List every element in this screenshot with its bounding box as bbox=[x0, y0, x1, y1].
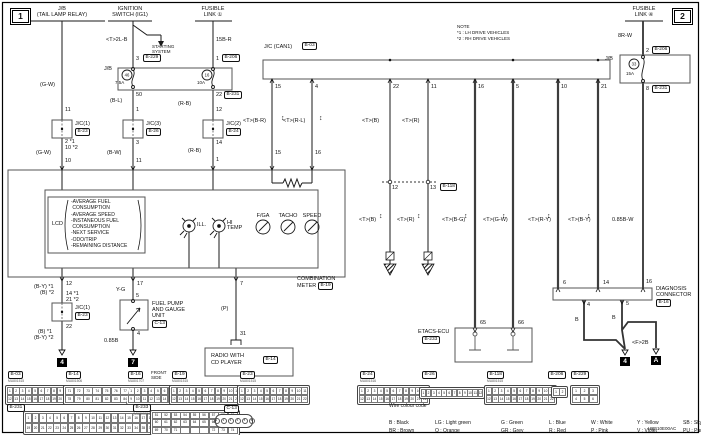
connector-ref-b206a: B-206 bbox=[222, 54, 240, 62]
table-row: 1234567891011 bbox=[359, 387, 428, 395]
table-row: 71727374757677 bbox=[65, 387, 130, 395]
ground-4-left: 4 bbox=[57, 358, 67, 367]
tacho-gauge-label: TACHO bbox=[279, 213, 298, 219]
illumination-lamp-icon bbox=[180, 218, 196, 238]
wire-p: (P) bbox=[221, 306, 228, 312]
table-row: 1234567891011 bbox=[486, 387, 555, 395]
table-code-b23: MU801515 bbox=[240, 379, 256, 383]
gauge-icons bbox=[256, 220, 319, 234]
table-row: 1213141516171819202122 bbox=[239, 395, 308, 403]
connector-ref-b229: B-229 bbox=[143, 54, 161, 62]
pin-50: 50 bbox=[136, 92, 142, 98]
pin-1b: 1 bbox=[136, 107, 139, 113]
pin-12a: 12 bbox=[216, 107, 222, 113]
fuel-gauge-label: F/GA bbox=[257, 213, 270, 219]
connector-ref-b23a: B-23 bbox=[75, 128, 90, 136]
jc-can1-box bbox=[263, 60, 610, 79]
ground-4-right: 4 bbox=[620, 357, 630, 366]
pin-1a: 1 bbox=[216, 56, 219, 62]
pin-4: 4 bbox=[137, 331, 140, 337]
fuse-33-amp: 15A bbox=[626, 71, 634, 76]
table-title-c13: C-13 bbox=[224, 405, 239, 413]
wire-f2b: <F>2B bbox=[632, 340, 649, 346]
fusible-link4-label-2: LINK ④ bbox=[635, 12, 654, 18]
twisted-pair-terminators bbox=[384, 252, 434, 275]
table-title-b26: B-26 bbox=[422, 371, 437, 379]
wire-b-diag1: B bbox=[575, 317, 579, 323]
fuel-pump-label-3: UNIT bbox=[152, 313, 165, 319]
connector-table-b14: 71727374757677 78798081828384 bbox=[63, 385, 132, 405]
wire-gw-2: (G-W) bbox=[36, 150, 51, 156]
table-code-b233: (MU803746) bbox=[133, 412, 151, 416]
connector-ref-c13: C-13 bbox=[152, 320, 167, 328]
table-row: 123 bbox=[572, 387, 598, 395]
meter-pin-17: 17 bbox=[137, 281, 143, 287]
fuse-46-amp: 7.5A bbox=[115, 80, 124, 85]
pin-22b: 22 bbox=[66, 324, 72, 330]
connector-ref-b03: B-03 bbox=[302, 42, 317, 50]
c13-pins: 123456 bbox=[213, 418, 255, 424]
twisted-wire-icon: ↕ bbox=[379, 213, 383, 220]
connector-ref-b231a: B-231 bbox=[224, 91, 242, 99]
twisted-wire-icon: ↕ bbox=[502, 213, 506, 220]
table-code-b03: MU801515 bbox=[8, 379, 24, 383]
twisted-wire-icon: ↕ bbox=[587, 213, 591, 220]
hitemp-label-2: TEMP bbox=[227, 225, 242, 231]
connector-ref-b19: B-19 bbox=[318, 282, 333, 290]
fusible-link1-label-2: LINK ① bbox=[204, 12, 223, 18]
pin-3: 3 bbox=[136, 56, 139, 62]
table-title-b231: B-231 bbox=[7, 404, 25, 412]
wire-15br: 15B-R bbox=[216, 37, 232, 43]
fuse-46-number: 46 bbox=[125, 73, 130, 78]
b118-pin12-circle bbox=[388, 180, 392, 184]
etacs-label: ETACS-ECU bbox=[418, 329, 449, 335]
connector-ref-b118: B-118 bbox=[440, 183, 457, 191]
etacs-internals bbox=[469, 332, 519, 350]
diag-pin-16: 16 bbox=[646, 279, 652, 285]
pin-11a: 11 bbox=[65, 107, 71, 113]
wire-can-r2: <T>(R) bbox=[397, 217, 414, 223]
wire-2lb: <T>2L-B bbox=[106, 37, 127, 43]
connector-ref-b14: B-14 bbox=[263, 356, 278, 364]
can-pin-15: 15 bbox=[275, 84, 281, 90]
twisted-wire-icon: ↕ bbox=[319, 115, 323, 122]
wire-can-r1: <T>(R) bbox=[402, 118, 419, 124]
jb-tail-label-2: (TAIL LAMP RELAY) bbox=[37, 12, 87, 18]
fuse-16-number: 16 bbox=[205, 73, 210, 78]
connector-ref-b23b: B-23 bbox=[75, 312, 90, 320]
wire-b-diag2: B bbox=[612, 315, 616, 321]
can-pin-10: 10 bbox=[561, 84, 567, 90]
pin-1c: 1 bbox=[216, 157, 219, 163]
thin-wires bbox=[20, 21, 663, 350]
pin-8: 8 bbox=[646, 86, 649, 92]
meter-pin-16: 16 bbox=[315, 150, 321, 156]
jc3-label: J/C(3) bbox=[146, 121, 161, 127]
connector-table-b19: 1234567891011 1213141516171819202122 bbox=[169, 385, 242, 405]
thick-wires bbox=[475, 79, 598, 328]
ground-terminals bbox=[59, 349, 659, 355]
etacs-ecu-box bbox=[455, 328, 532, 362]
connector-ref-b16: B-16 bbox=[656, 299, 671, 307]
pin-14a: 14 bbox=[216, 140, 222, 146]
note-line-2: *2 : RH DRIVE VEHICLES bbox=[457, 36, 510, 41]
table-title-b206: B-206 bbox=[548, 371, 566, 379]
table-title-b19: B-19 bbox=[172, 371, 187, 379]
meter-pin-12: 12 bbox=[66, 281, 72, 287]
meter-name-2: METER bbox=[297, 283, 316, 289]
jc-can1-label: J/C (CAN1) bbox=[264, 44, 292, 50]
b118-pin-12: 12 bbox=[392, 185, 398, 191]
table-title-b03: B-03 bbox=[8, 371, 23, 379]
wire-yg: Y-G bbox=[116, 287, 125, 293]
table-row: 192021222324252627282930313233343536 bbox=[25, 423, 154, 433]
meter-pin-15: 15 bbox=[275, 150, 281, 156]
table-row: 1213141516171819202122 bbox=[359, 395, 428, 403]
wiring-diagram-page: 1 2 J/B (TAIL LAMP RELAY) IGNITION SWITC… bbox=[0, 0, 701, 435]
table-row: 1213141516171819202122 bbox=[171, 395, 240, 403]
diag-pin-4: 4 bbox=[587, 302, 590, 308]
can-pin-16: 16 bbox=[478, 84, 484, 90]
pin-3b: 3 bbox=[136, 140, 139, 146]
jc2-label: J/C(2) bbox=[226, 121, 241, 127]
wire-can-b1: <T>(B) bbox=[362, 118, 379, 124]
ill-lamp-label: ILL. bbox=[197, 222, 206, 228]
connector-ref-b233: B-233 bbox=[422, 336, 440, 344]
pin-22a: 22 bbox=[216, 92, 222, 98]
fuse-33-number: 33 bbox=[632, 62, 637, 67]
legend-title: Wire colour code bbox=[389, 404, 427, 410]
b16-front-note-2: SIDE bbox=[151, 375, 162, 380]
speed-gauge-label: SPEED bbox=[303, 213, 322, 219]
table-title-b24: B-24 bbox=[360, 371, 375, 379]
wire-can-b2: <T>(B) bbox=[359, 217, 376, 223]
pin-2: 2 bbox=[646, 48, 649, 54]
wire-rb-2: (R-B) bbox=[188, 148, 201, 154]
table-row: 123456789101112 bbox=[421, 389, 483, 397]
sheet-number-left: 1 bbox=[10, 8, 31, 25]
meter-pin-7: 7 bbox=[240, 281, 243, 287]
can-pin-22: 22 bbox=[393, 84, 399, 90]
can-pin-4: 4 bbox=[315, 84, 318, 90]
table-title-b16: B-16 bbox=[128, 371, 143, 379]
table-row: 12 bbox=[553, 388, 566, 396]
twisted-wire-icon: ↕ bbox=[547, 213, 551, 220]
b118-pin-13: 13 bbox=[430, 185, 436, 191]
twisted-wire-icon: ↕ bbox=[464, 213, 468, 220]
can-pin-5: 5 bbox=[516, 84, 519, 90]
connector-ref-b231b: B-231 bbox=[652, 85, 670, 93]
lcd-function-list: -AVERAGE FUEL CONSUMPTION-AVERAGE SPEED-… bbox=[71, 199, 127, 249]
connector-table-b118: 1234567891011 1213141516171819202122 bbox=[484, 385, 557, 405]
fuse-16-amp: 10A bbox=[197, 80, 205, 85]
table-title-b118: B-118 bbox=[487, 371, 504, 379]
jb-left-label: J/B bbox=[104, 66, 112, 72]
table-code-b16: MU801707 bbox=[128, 379, 144, 383]
pin-21-star: 21 *2 bbox=[66, 297, 79, 303]
jb-right-label: J/B bbox=[605, 56, 613, 62]
radio-label-1: RADIO WITH bbox=[211, 353, 244, 359]
ground-a: A bbox=[651, 356, 661, 365]
table-row: 78798081828384 bbox=[65, 395, 130, 403]
wire-085b: 0.85B bbox=[104, 338, 118, 344]
wire-8rw: 8R-W bbox=[618, 33, 632, 39]
table-title-b229: B-229 bbox=[571, 371, 589, 379]
fuel-sender-icon bbox=[127, 300, 140, 331]
wire-can-br: <T>(B-R) bbox=[243, 118, 266, 124]
twisted-wire-icon: ↕ bbox=[417, 213, 421, 220]
can-pin-21: 21 bbox=[601, 84, 607, 90]
table-title-b23: B-23 bbox=[240, 371, 255, 379]
wire-rb-1: (R-B) bbox=[178, 101, 191, 107]
diag-pin-6: 6 bbox=[563, 280, 566, 286]
diagram-corner-code: HBF10E00AC bbox=[648, 426, 676, 431]
diagnosis-connector-strip bbox=[553, 288, 652, 300]
table-row: 1234567891011 bbox=[171, 387, 240, 395]
radio-connector-symbol bbox=[231, 340, 241, 345]
sheet-number-right: 2 bbox=[672, 8, 693, 25]
connector-ref-b26: B-26 bbox=[146, 128, 161, 136]
connector-ref-b24: B-24 bbox=[226, 128, 241, 136]
pin-10-star: 10 *2 bbox=[65, 145, 78, 151]
diag-pin-5: 5 bbox=[626, 301, 629, 307]
pin-31: 31 bbox=[240, 331, 246, 337]
wire-bl: (B-L) bbox=[110, 98, 122, 104]
wire-can-bg: <T>(B-G) bbox=[442, 217, 465, 223]
table-code-b19: MU801515 bbox=[172, 379, 188, 383]
wire-b2: (B) *2 bbox=[40, 290, 54, 296]
hi-temp-lamp-icon bbox=[210, 218, 226, 238]
etacs-pin-66: 66 bbox=[518, 320, 524, 326]
table-code-b14: MU801506 bbox=[66, 379, 82, 383]
table-title-b14: B-14 bbox=[66, 371, 81, 379]
jc1-label: J/C(1) bbox=[75, 121, 90, 127]
note-line-1: *1 : LH DRIVE VEHICLES bbox=[457, 30, 509, 35]
wire-gw-1: (G-W) bbox=[40, 82, 55, 88]
connector-table-b229: 123 456 bbox=[570, 385, 600, 405]
connector-table-b23: 1234567891011 1213141516171819202122 bbox=[237, 385, 310, 405]
pin-11b: 11 bbox=[136, 158, 142, 164]
wire-bw: (B-W) bbox=[107, 150, 121, 156]
diag-label-2: CONNECTOR bbox=[656, 292, 691, 298]
table-row: 456 bbox=[572, 395, 598, 403]
ignition-label-2: SWITCH (IG1) bbox=[112, 12, 148, 18]
pin-10: 10 bbox=[65, 158, 71, 164]
table-code-b24: MU801516 bbox=[360, 379, 376, 383]
ground-7: 7 bbox=[128, 358, 138, 367]
wire-can-rl: <T>(R-L) bbox=[283, 118, 305, 124]
note-title: NOTE bbox=[457, 24, 470, 29]
connector-ref-b206b: B-206 bbox=[652, 46, 670, 54]
diag-pin-14: 14 bbox=[603, 280, 609, 286]
wire-by2: (B-Y) *2 bbox=[34, 335, 54, 341]
twisted-wire-icon: ↕ bbox=[281, 115, 285, 122]
etacs-pin-65: 65 bbox=[480, 320, 486, 326]
can-pin-11: 11 bbox=[431, 84, 437, 90]
table-row: 1234567891011 bbox=[239, 387, 308, 395]
b118-pin13-circle bbox=[426, 180, 430, 184]
connector-table-b206: 12 bbox=[551, 386, 568, 398]
pin-5: 5 bbox=[136, 293, 139, 299]
can-termination-resistor bbox=[283, 179, 302, 187]
table-title-b233: B-233 bbox=[133, 404, 151, 412]
jc1-lower-label: J/C(1) bbox=[75, 305, 90, 311]
radio-label-2: CD PLAYER bbox=[211, 360, 242, 366]
wire-085bw: 0.85B-W bbox=[612, 217, 633, 223]
connector-table-b26: 123456789101112 bbox=[419, 387, 485, 399]
table-code-b118: MU801515 bbox=[487, 379, 503, 383]
table-row: 1213141516171819202122 bbox=[486, 395, 555, 403]
lcd-label: LCD bbox=[52, 221, 63, 227]
connector-table-c13: 123456 bbox=[215, 414, 253, 428]
junction-block-right-box bbox=[620, 55, 690, 83]
